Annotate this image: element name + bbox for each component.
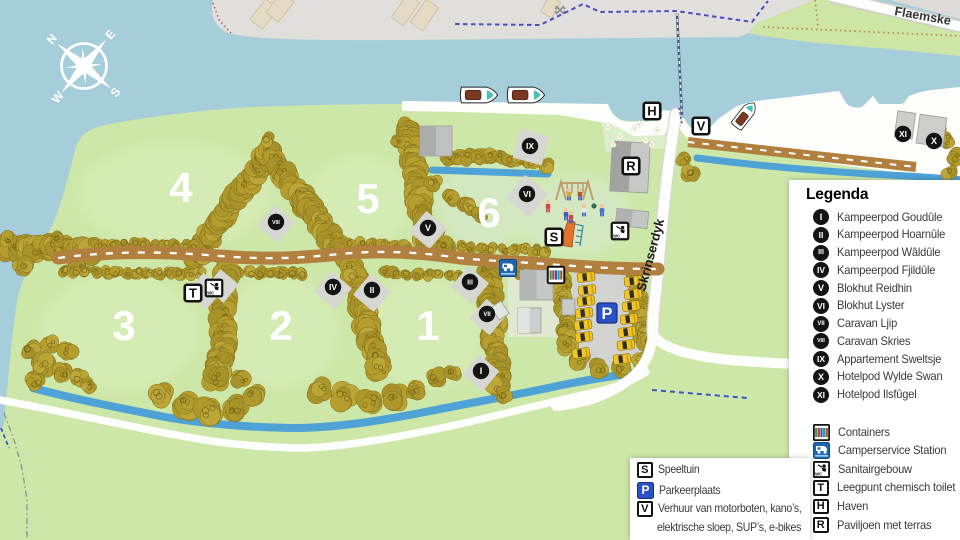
svg-text:VIII: VIII — [272, 220, 280, 226]
svg-text:5: 5 — [356, 175, 379, 222]
svg-text:IV: IV — [329, 282, 337, 292]
svg-text:VI: VI — [523, 189, 531, 199]
svg-text:V: V — [697, 119, 706, 134]
svg-text:WC: WC — [613, 233, 620, 238]
svg-text:4: 4 — [169, 164, 193, 211]
svg-text:3: 3 — [112, 302, 135, 349]
svg-text:VII: VII — [483, 312, 491, 318]
svg-text:1: 1 — [416, 302, 439, 349]
svg-text:S: S — [550, 230, 559, 245]
svg-text:R: R — [626, 159, 636, 174]
svg-text:P: P — [602, 305, 613, 323]
svg-text:2: 2 — [269, 302, 292, 349]
svg-text:H: H — [647, 104, 656, 119]
svg-text:IX: IX — [526, 141, 534, 151]
svg-text:I: I — [480, 366, 483, 376]
svg-text:WC: WC — [815, 471, 822, 476]
svg-text:V: V — [425, 223, 431, 233]
svg-text:6: 6 — [477, 189, 500, 236]
svg-text:III: III — [467, 280, 473, 287]
svg-text:WC: WC — [207, 290, 214, 295]
svg-text:XI: XI — [899, 129, 907, 139]
svg-text:II: II — [370, 285, 375, 295]
svg-text:X: X — [931, 136, 937, 146]
svg-text:T: T — [189, 286, 197, 301]
